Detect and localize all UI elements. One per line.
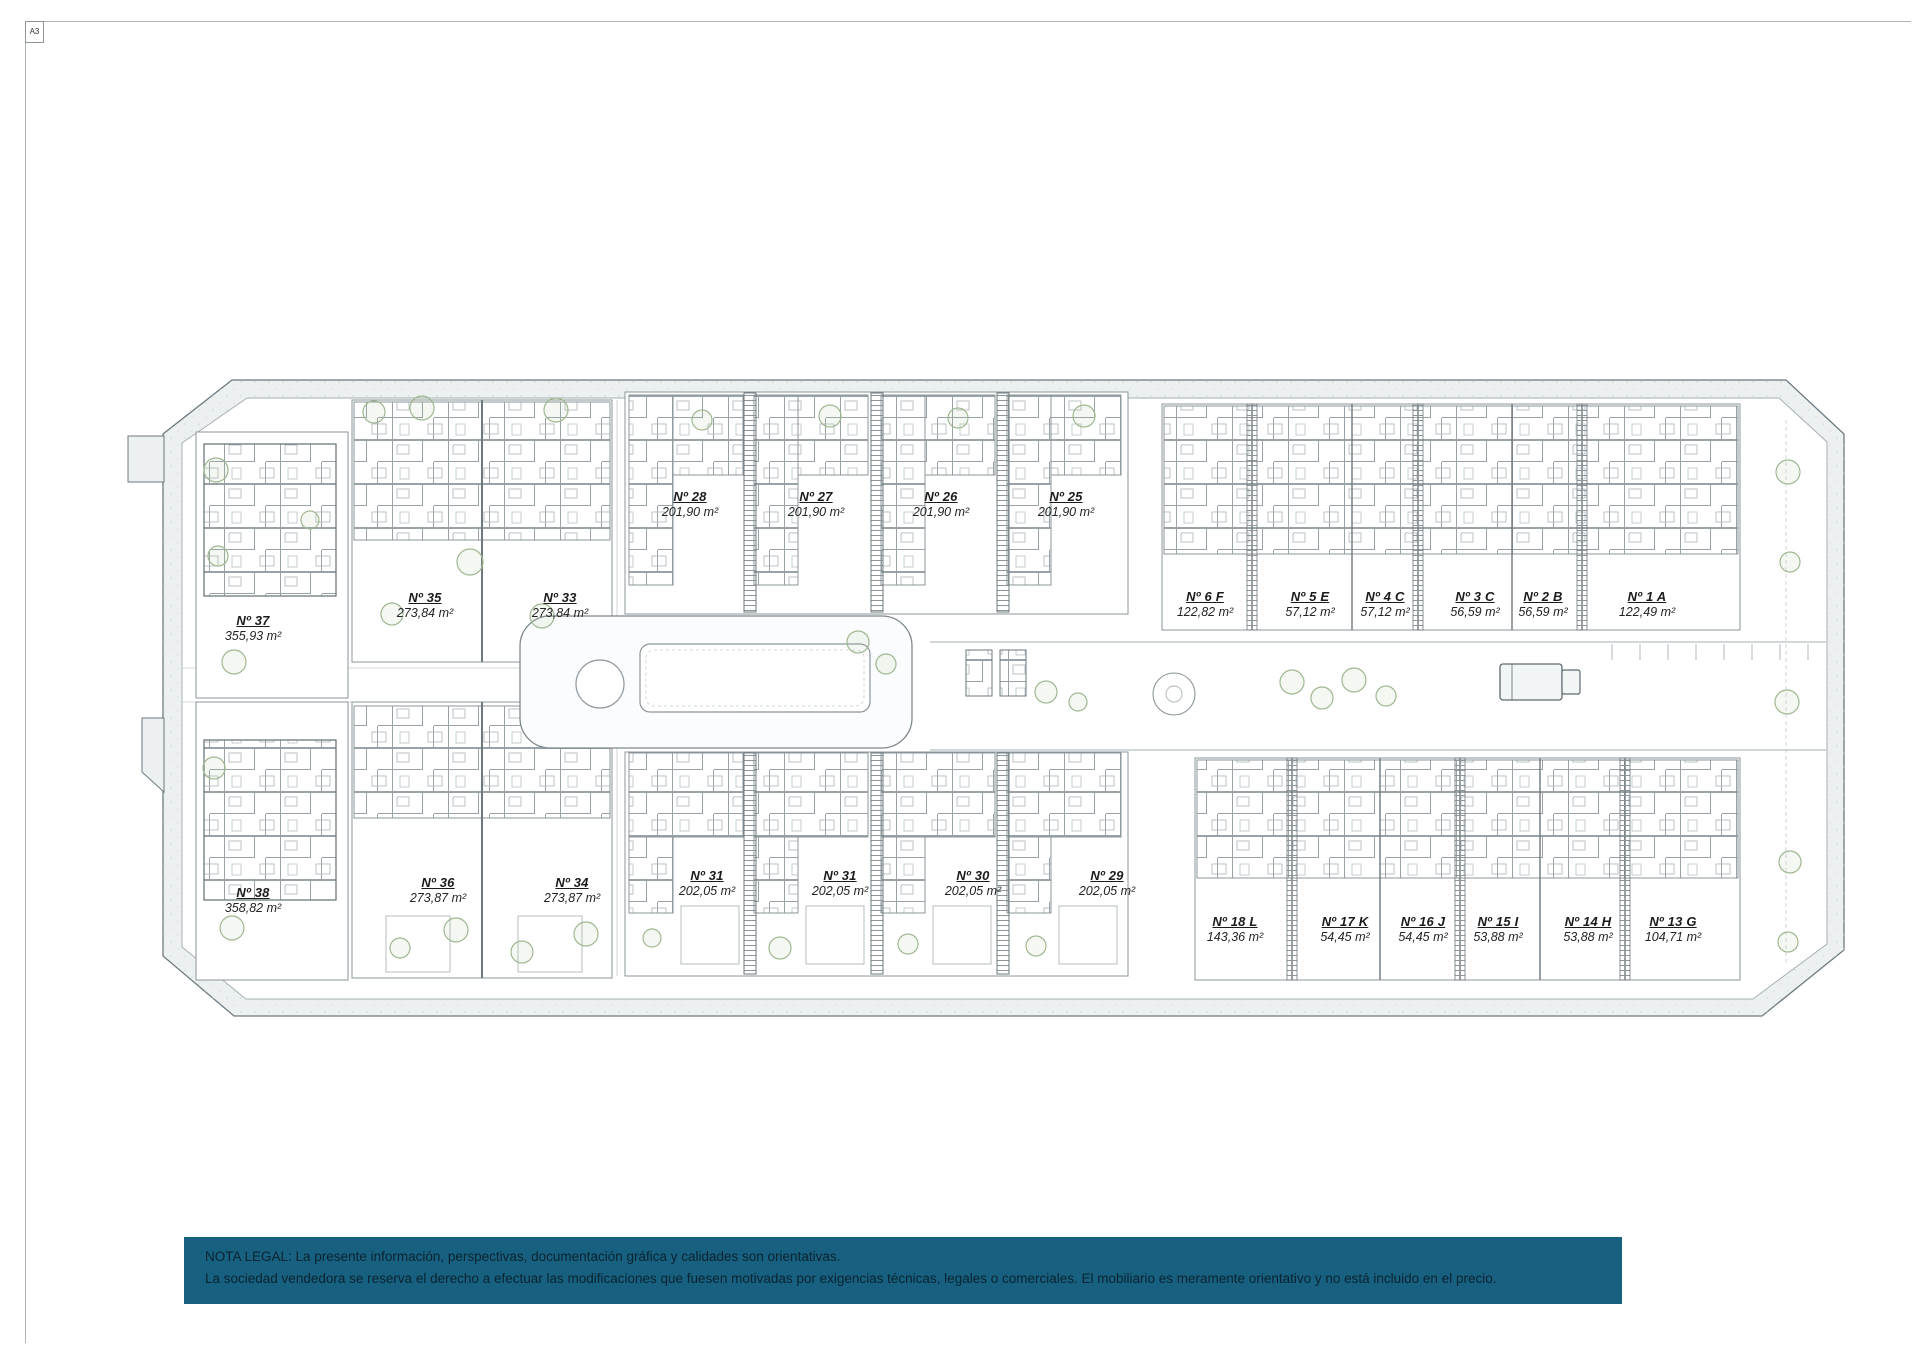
row-units-18L-13G [1195,758,1740,980]
unit-label-5E: Nº 5 E57,12 m² [1285,589,1334,621]
unit-label-35: Nº 35273,84 m² [397,590,453,622]
unit-label-26: Nº 26201,90 m² [913,489,969,521]
unit-label-18L: Nº 18 L143,36 m² [1207,914,1263,946]
unit-label-17K: Nº 17 K54,45 m² [1320,914,1369,946]
unit-label-34: Nº 34273,87 m² [544,875,600,907]
unit-label-28: Nº 28201,90 m² [662,489,718,521]
unit-label-6F: Nº 6 F122,82 m² [1177,589,1233,621]
unit-label-2B: Nº 2 B56,59 m² [1518,589,1567,621]
legal-note-line-1: NOTA LEGAL: La presente información, per… [205,1246,1604,1268]
unit-label-16J: Nº 16 J54,45 m² [1398,914,1447,946]
villa-38-block [196,702,348,980]
unit-label-29: Nº 29202,05 m² [1079,868,1135,900]
row-units-31-29 [625,752,1128,976]
unit-label-27: Nº 27201,90 m² [788,489,844,521]
vehicle-icon [1500,664,1580,700]
unit-label-4C: Nº 4 C57,12 m² [1360,589,1409,621]
unit-label-37: Nº 37355,93 m² [225,613,281,645]
unit-label-38: Nº 38358,82 m² [225,885,281,917]
unit-label-33: Nº 33273,84 m² [532,590,588,622]
unit-label-3C: Nº 3 C56,59 m² [1450,589,1499,621]
unit-label-15I: Nº 15 I53,88 m² [1473,914,1522,946]
unit-label-31a: Nº 31202,05 m² [679,868,735,900]
unit-label-13G: Nº 13 G104,71 m² [1645,914,1701,946]
legal-note-band: NOTA LEGAL: La presente información, per… [184,1237,1622,1304]
site-floor-plan [0,0,1920,1357]
unit-label-14H: Nº 14 H53,88 m² [1563,914,1612,946]
unit-label-31b: Nº 31202,05 m² [812,868,868,900]
unit-label-1A: Nº 1 A122,49 m² [1619,589,1675,621]
unit-label-30: Nº 30202,05 m² [945,868,1001,900]
unit-label-25: Nº 25201,90 m² [1038,489,1094,521]
unit-label-36: Nº 36273,87 m² [410,875,466,907]
legal-note-line-2: La sociedad vendedora se reserva el dere… [205,1268,1604,1290]
